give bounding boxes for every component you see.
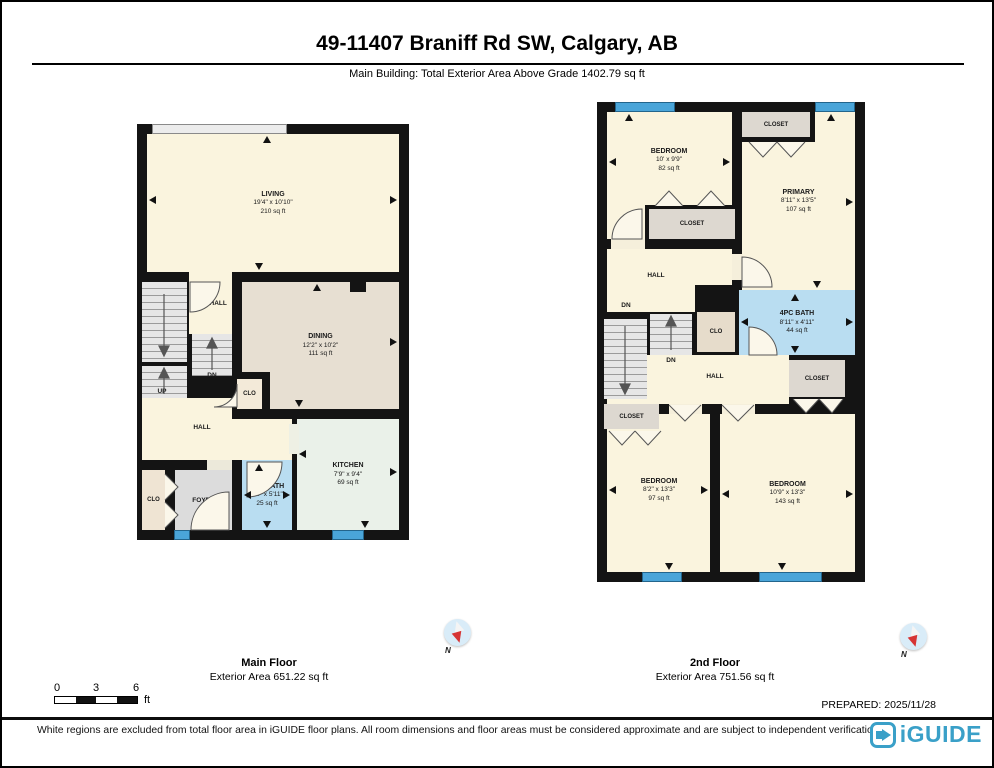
main-floor-plan: LIVING 19'4" x 10'10" 210 sq ft DN HALL … <box>137 124 409 540</box>
primary-closet: CLOSET <box>742 112 810 137</box>
bedroom-top-opening <box>611 239 645 249</box>
footer-divider <box>2 717 992 720</box>
hall-lower-label: HALL <box>695 373 735 380</box>
scale-tick-3: 3 <box>93 682 99 694</box>
scale-bar: 0 3 6 ft <box>54 682 164 708</box>
prepared-date: PREPARED: 2025/11/28 <box>821 699 936 711</box>
dn-label: DN <box>614 302 638 309</box>
room-dining-name: DINING <box>308 332 333 341</box>
room-primary-area: 107 sq ft <box>786 206 811 214</box>
window <box>815 102 855 112</box>
entry-closet: CLO <box>142 470 165 530</box>
closet-right: CLOSET <box>789 360 845 397</box>
bedroom-closet-label: CLOSET <box>680 221 704 227</box>
stairs-down <box>142 282 187 362</box>
window <box>759 572 822 582</box>
scale-bar-segments <box>54 696 138 704</box>
room-bedroom-top-name: BEDROOM <box>651 147 688 156</box>
main-floor-area: Exterior Area 651.22 sq ft <box>169 671 369 684</box>
hall-kitchen-opening <box>289 424 299 454</box>
hall-closet: CLO <box>697 312 735 352</box>
hall-bedroom-opening <box>722 404 755 414</box>
iguide-logo-text: iGUIDE <box>900 721 982 748</box>
closet-right-label: CLOSET <box>805 376 829 382</box>
second-floor-plan: BEDROOM 10' x 9'9" 82 sq ft PRIMARY 8'11… <box>597 102 865 582</box>
room-kitchen: KITCHEN 7'9" x 9'4" 69 sq ft <box>297 419 399 530</box>
scale-tick-0: 0 <box>54 682 60 694</box>
compass-north-label: N <box>445 646 451 655</box>
room-dining-dims: 12'2" x 10'2" <box>303 342 339 350</box>
room-dining-area: 111 sq ft <box>309 350 333 358</box>
header-divider <box>32 63 964 65</box>
room-bedroom-top-label: BEDROOM 10' x 9'9" 82 sq ft <box>619 142 719 178</box>
room-bedroom-right-area: 143 sq ft <box>775 498 800 506</box>
dining-closet-label: CLO <box>243 391 256 397</box>
room-foyer-label: FOYER <box>192 497 214 504</box>
room-2pc-bath-dims: 4'4" x 5'11" <box>251 491 283 499</box>
room-4pc-bath: 4PC BATH 8'11" x 4'11" 44 sq ft <box>739 290 855 355</box>
window <box>174 530 190 540</box>
bedroom-door-area <box>607 209 645 239</box>
dn-label: DN <box>202 372 222 379</box>
hall-upper-label: HALL <box>210 300 227 307</box>
room-bedroom-top-dims: 10' x 9'9" <box>656 156 682 164</box>
entry-closet-label: CLO <box>147 497 160 503</box>
room-4pc-bath-dims: 8'11" x 4'11" <box>780 319 815 327</box>
iguide-logo-icon <box>870 722 896 748</box>
hall-closet-label: CLO <box>710 329 723 335</box>
room-bedroom-left-name: BEDROOM <box>641 477 678 486</box>
room-bedroom-left-dims: 8'2" x 13'3" <box>643 486 675 494</box>
closet-left-label: CLOSET <box>619 414 643 420</box>
window <box>615 102 675 112</box>
hall-lower-label: HALL <box>172 424 232 431</box>
stairs-up <box>650 314 692 355</box>
room-2pc-bath: 2PC BATH 4'4" x 5'11" 25 sq ft <box>242 460 292 530</box>
scale-segment <box>96 697 117 703</box>
room-living-dims: 19'4" x 10'10" <box>253 199 292 207</box>
compass-north-label: N <box>901 650 907 659</box>
room-bedroom-left-label: BEDROOM 8'2" x 13'3" 97 sq ft <box>609 472 709 508</box>
room-kitchen-name: KITCHEN <box>332 461 363 470</box>
scale-tick-6: 6 <box>133 682 139 694</box>
dn-label: DN <box>659 357 683 364</box>
main-floor-label: Main Floor <box>169 657 369 671</box>
scale-segment <box>55 697 76 703</box>
room-primary-name: PRIMARY <box>782 188 814 197</box>
hall-primary-opening <box>732 254 742 280</box>
scale-segment <box>76 697 97 703</box>
up-label: UP <box>147 388 177 395</box>
room-living-name: LIVING <box>261 190 284 199</box>
hall-bedroom-opening <box>669 404 702 414</box>
hall-upper-room: DN HALL <box>189 272 232 334</box>
room-2pc-bath-area: 25 sq ft <box>256 500 277 508</box>
scale-unit-label: ft <box>144 694 150 706</box>
room-living: LIVING 19'4" x 10'10" 210 sq ft <box>147 134 399 272</box>
window <box>642 572 682 582</box>
window <box>332 530 364 540</box>
dining-closet: CLO <box>237 379 262 409</box>
second-floor-label: 2nd Floor <box>615 657 815 671</box>
primary-closet-label: CLOSET <box>764 122 788 128</box>
room-living-area: 210 sq ft <box>261 208 286 216</box>
second-floor-area: Exterior Area 751.56 sq ft <box>615 671 815 684</box>
compass-icon: N <box>899 622 929 662</box>
room-kitchen-dims: 7'9" x 9'4" <box>334 471 362 479</box>
room-foyer: FOYER <box>175 470 232 530</box>
scale-segment <box>117 697 138 703</box>
floorplan-sheet: 49-11407 Braniff Rd SW, Calgary, AB Main… <box>0 0 994 768</box>
hall-upper-label: HALL <box>636 272 676 279</box>
building-area-subtitle: Main Building: Total Exterior Area Above… <box>2 68 992 80</box>
hall-upper-room <box>607 249 732 285</box>
room-bedroom-right-name: BEDROOM <box>769 480 806 489</box>
second-floor-caption: 2nd Floor Exterior Area 751.56 sq ft <box>615 657 815 684</box>
room-primary-dims: 8'11" x 13'5" <box>781 197 816 205</box>
closet-left: CLOSET <box>604 404 659 429</box>
footer-disclaimer: White regions are excluded from total fl… <box>37 725 881 736</box>
stairs-mid <box>192 334 232 376</box>
room-4pc-bath-area: 44 sq ft <box>786 327 807 335</box>
room-kitchen-area: 69 sq ft <box>337 479 358 487</box>
window <box>152 124 287 134</box>
room-bedroom-right-dims: 10'9" x 13'3" <box>770 489 806 497</box>
room-bedroom-left-area: 97 sq ft <box>648 495 669 503</box>
room-2pc-bath-name: 2PC BATH <box>250 482 284 491</box>
main-floor-caption: Main Floor Exterior Area 651.22 sq ft <box>169 657 369 684</box>
compass-icon: N <box>443 618 473 658</box>
dn-label: DN <box>194 300 203 307</box>
hall-foyer-opening <box>207 460 232 470</box>
stairs-down <box>604 319 647 399</box>
page-title: 49-11407 Braniff Rd SW, Calgary, AB <box>2 32 992 56</box>
iguide-logo: iGUIDE <box>870 721 982 748</box>
bedroom-closet: CLOSET <box>649 209 735 239</box>
room-4pc-bath-name: 4PC BATH <box>780 309 814 318</box>
iguide-logo-glyph <box>882 729 891 741</box>
wall-notch <box>350 282 366 292</box>
room-bedroom-right: BEDROOM 10'9" x 13'3" 143 sq ft <box>720 414 855 572</box>
room-bedroom-top-area: 82 sq ft <box>658 165 679 173</box>
